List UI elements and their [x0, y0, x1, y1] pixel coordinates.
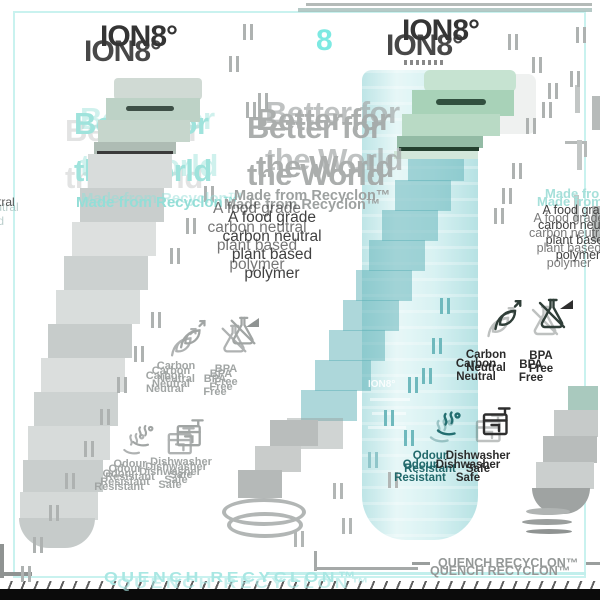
scent-odour-icon [432, 408, 468, 444]
ghost-body-band [20, 492, 98, 520]
shear-tail-band [238, 470, 282, 498]
tick-mark [170, 248, 173, 264]
cap-band [402, 114, 500, 136]
dishwasher-icon [478, 404, 514, 440]
feature-label-bpa-free-ghost: BPA Free [196, 363, 256, 389]
leaf-carbon-neutral-icon [174, 319, 208, 353]
tick-mark [432, 338, 435, 354]
shear-step [329, 330, 385, 361]
tick-mark [229, 56, 232, 72]
feature-label-dishwasher-safe-ghost: Dishwasher Safe [146, 456, 216, 482]
cap-slot [436, 99, 486, 105]
edge-fragment [577, 140, 582, 170]
ghost-band [543, 436, 597, 463]
edge-fragment [575, 85, 580, 113]
bottle-print-bar [368, 426, 406, 429]
body-copy-ghost-right: A food grade carbon neutral plant based … [528, 203, 600, 263]
tick-mark [388, 472, 391, 488]
body-line: plant based [0, 210, 38, 224]
shear-step [382, 210, 438, 241]
shear-step [343, 300, 399, 331]
body-line: plant based [528, 233, 600, 248]
flask-bpa-free-icon [534, 297, 570, 333]
bottle-print-bar [372, 412, 406, 415]
product-image: ION8° [0, 0, 600, 600]
tick-mark [508, 34, 511, 50]
leaf-carbon-neutral-icon [488, 299, 524, 335]
ghost-cap-slot [126, 106, 174, 111]
bottle-print-bar [370, 398, 410, 401]
ghost-band [536, 462, 594, 489]
body-line: A food grade [528, 203, 600, 218]
tick-mark [186, 218, 189, 234]
body-line: polymer [528, 248, 600, 263]
ghost-band-mint [568, 386, 598, 410]
tick-mark [243, 24, 246, 40]
shear-step [369, 240, 425, 271]
shear-step [301, 390, 357, 421]
body-line: carbon neutral [528, 218, 600, 233]
bottle-print-logo: ION8° [368, 379, 395, 390]
dishwasher-icon [172, 416, 207, 451]
edge-fragment [592, 96, 600, 130]
tick-mark [512, 163, 515, 179]
shear-tail-band [270, 420, 318, 446]
headline-line2: the World [256, 143, 394, 190]
tick-mark [570, 71, 573, 87]
frame-bracket-fragment [584, 143, 587, 157]
ghost-arc [526, 508, 570, 515]
tick-mark [368, 452, 371, 468]
ghost-body-band [23, 460, 103, 492]
shear-step [395, 180, 451, 211]
tick-mark [100, 409, 103, 425]
body-copy: A food grade carbon neutral plant based … [192, 209, 352, 283]
body-copy-ghost-left: carbon neutral plant based [0, 196, 38, 223]
tick-mark [542, 102, 545, 118]
feature-label-bpa-free: BPA Free [512, 350, 570, 376]
black-bottom-bar [0, 589, 600, 600]
ghost-body-band [64, 256, 148, 290]
cap-band [424, 70, 516, 92]
tick-mark [532, 57, 535, 73]
ghost-body-band [72, 222, 156, 256]
ghost-arc [526, 529, 572, 534]
ghost-body-band [88, 154, 172, 188]
ghost-body-band [28, 426, 110, 460]
tick-mark [84, 441, 87, 457]
tick-mark [246, 102, 249, 118]
body-line: carbon neutral [192, 228, 352, 247]
tick-mark [576, 27, 579, 43]
tick-mark [134, 346, 137, 362]
frame-corner-fragment [2, 572, 32, 576]
ghost-body-band [48, 324, 132, 358]
tick-mark [408, 377, 411, 393]
tick-mark [384, 410, 387, 426]
body-line: polymer [192, 265, 352, 284]
ghost-cap-band [114, 78, 202, 100]
tick-mark [548, 83, 551, 99]
shear-step [356, 270, 412, 301]
footer-text: QUENCH RECYCLON™ [438, 556, 578, 570]
tick-mark [502, 188, 505, 204]
tick-mark [65, 473, 68, 489]
tick-mark [33, 537, 36, 553]
tick-mark [342, 518, 345, 534]
footer-ghost: QUENCH RECYCLON™ [412, 556, 600, 570]
headline-line1: Better for [256, 96, 394, 143]
feature-label-dishwasher-safe: Dishwasher Safe [440, 450, 516, 476]
body-line: A food grade [192, 209, 352, 228]
scent-odour-icon [128, 422, 160, 454]
tick-mark [21, 566, 24, 582]
tick-mark [404, 430, 407, 446]
ghost-band [554, 410, 598, 437]
tick-mark [117, 377, 120, 393]
footer-dash [586, 562, 600, 565]
ghost-cap-band [98, 120, 190, 142]
subheading-ghost: Made from Recyclon™ [234, 188, 390, 204]
tick-mark [440, 298, 443, 314]
tick-mark [333, 483, 336, 499]
border-frame-ghost [306, 3, 592, 6]
border-frame-ghost [298, 8, 592, 12]
ghost-body-band [41, 358, 125, 392]
tick-mark [49, 505, 52, 521]
tick-mark [526, 118, 529, 134]
headline-ghost-right: Better for the World [256, 96, 394, 190]
shear-tail-band [255, 446, 301, 472]
tick-mark [494, 208, 497, 224]
ghost-arc [522, 519, 572, 525]
body-line: plant based [192, 246, 352, 265]
cap-neck [394, 151, 478, 159]
subheading-ghost-right: Made from Recyclon™ [545, 186, 600, 201]
footer-text-teal: QUENCH RECYCLON™ [104, 569, 359, 586]
ghost-body-band [34, 392, 118, 426]
body-line: carbon neutral [0, 196, 38, 210]
tick-mark [294, 531, 297, 547]
flask-bpa-free-icon [226, 315, 260, 349]
tick-mark [151, 312, 154, 328]
ghost-bottom-ring [227, 512, 303, 538]
tick-mark [422, 368, 425, 384]
ghost-body-band [56, 290, 140, 324]
shear-step [315, 360, 371, 391]
footer-dash [412, 562, 430, 565]
